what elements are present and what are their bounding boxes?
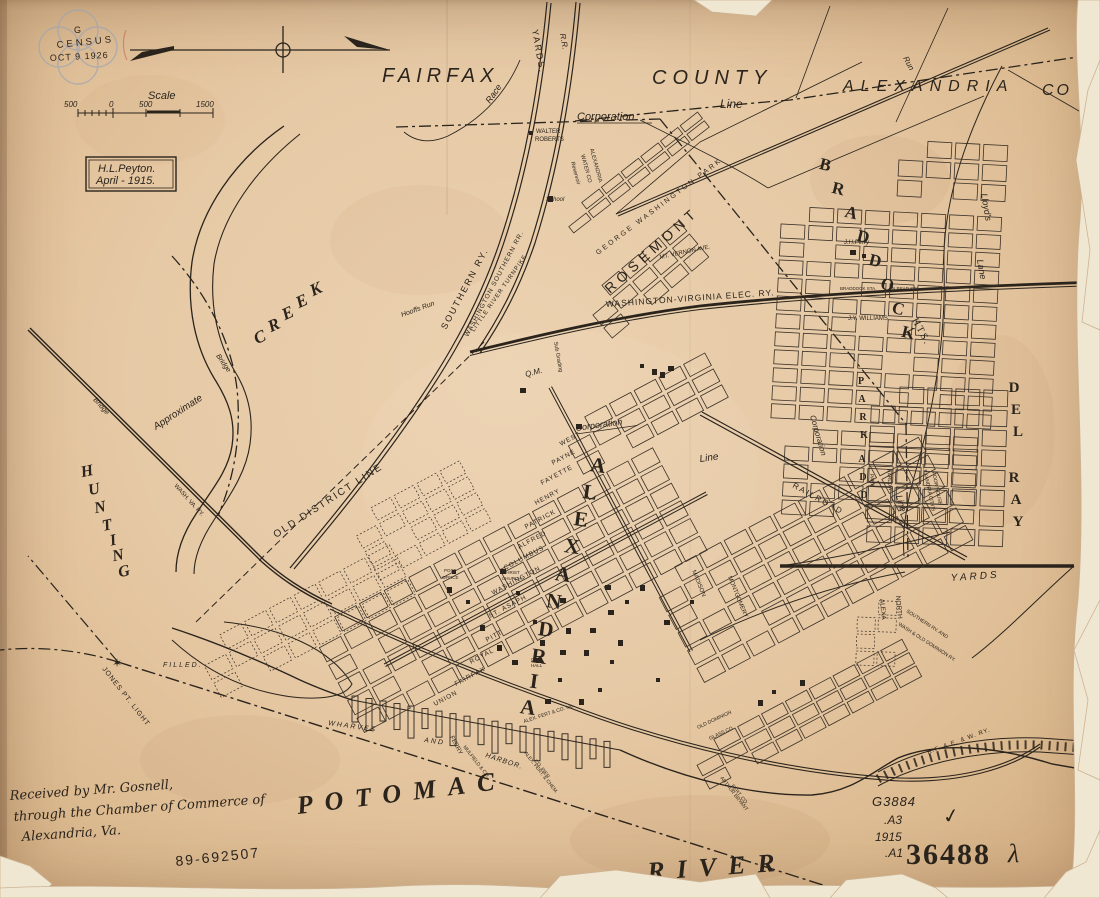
city-block [774, 350, 799, 365]
city-block [313, 619, 342, 644]
city-block [356, 526, 382, 549]
city-block [857, 617, 875, 632]
city-block [738, 715, 765, 737]
scale-500-left-label: 500 [64, 100, 78, 109]
city-block [319, 571, 348, 596]
city-block [777, 569, 806, 594]
building-mark [664, 620, 670, 625]
city-block [842, 512, 871, 537]
creek-label: CREEK [251, 277, 327, 348]
park-add-letter: A [858, 454, 866, 465]
hunting-letter: N [92, 498, 109, 518]
building-mark [579, 699, 584, 705]
hunting-label: HUNTING [78, 462, 132, 581]
bridge-2-label: Bridge [214, 353, 231, 374]
city-block [783, 521, 812, 546]
building-mark [800, 680, 805, 686]
building-mark [618, 640, 623, 646]
city-block [406, 681, 435, 706]
city-block [947, 251, 972, 266]
city-block [828, 389, 853, 404]
building-mark [610, 660, 614, 664]
city-block [588, 198, 610, 218]
city-block [799, 717, 826, 739]
building-mark [516, 591, 520, 595]
city-block [648, 152, 670, 172]
city-block [746, 631, 775, 656]
park-add-letter: D [859, 472, 866, 483]
building-mark [656, 678, 660, 682]
walter-roberts-1-label: WALTER [536, 129, 561, 135]
city-block [752, 582, 781, 607]
building-mark [566, 628, 571, 634]
wharf-pier [548, 731, 554, 751]
wharf-pier [604, 741, 610, 767]
city-block [847, 691, 874, 713]
school-label: School [546, 197, 565, 203]
city-block [394, 597, 423, 622]
bridge-1-label: Bridge [92, 397, 111, 417]
city-block [422, 650, 451, 675]
building-mark [533, 620, 537, 624]
fairfax-label: FAIRFAX [382, 65, 498, 87]
city-block [881, 639, 908, 661]
city-block [808, 225, 833, 240]
scan-edge-shadow [0, 0, 7, 898]
run-label: Run [901, 55, 916, 73]
building-mark [608, 610, 614, 615]
building-mark [660, 372, 665, 378]
city-block [712, 626, 741, 651]
wharf-pier [520, 726, 526, 752]
st-fairfax-label: FAIRFAX [454, 666, 487, 688]
city-block [244, 610, 273, 635]
city-block [831, 335, 856, 350]
city-block [288, 633, 317, 658]
map-line [796, 6, 830, 98]
city-block [778, 260, 803, 275]
building-mark [862, 254, 866, 258]
wharf-pier [464, 716, 470, 736]
city-block [779, 242, 804, 257]
city-block [353, 576, 382, 601]
city-block [976, 234, 1001, 249]
city-block [680, 112, 702, 132]
city-block [773, 368, 798, 383]
city-block [628, 167, 650, 187]
del-ray-letter: Y [1013, 514, 1024, 530]
city-block [943, 323, 968, 338]
city-block [781, 500, 806, 515]
building-mark [652, 369, 657, 375]
city-block [895, 666, 922, 688]
city-block [840, 678, 867, 700]
city-block [771, 404, 796, 419]
red-stamp-number-label: 36488 [906, 838, 991, 871]
alexandria-big-letter: I [528, 669, 539, 694]
wharf-pier [590, 739, 596, 759]
street-grid [195, 545, 416, 698]
city-block [816, 691, 843, 713]
mt-vernon-ave-label: MT. VERNON AVE. [659, 244, 711, 261]
del-ray-letter: L [1013, 424, 1023, 440]
building-mark [529, 131, 533, 135]
city-block [857, 652, 884, 674]
city-block [776, 314, 801, 329]
building-mark [466, 600, 470, 604]
creek-letter: E [278, 302, 297, 324]
city-block [688, 639, 717, 664]
city-block [418, 584, 447, 609]
corporation-top-label: Corporation [577, 111, 634, 123]
st-union-label: UNION [433, 689, 459, 707]
and-label: AND [423, 737, 446, 747]
city-block [948, 233, 973, 248]
city-block [871, 678, 898, 700]
map-line [172, 256, 238, 516]
wharf-pier [422, 709, 428, 729]
city-block [858, 354, 883, 369]
city-block [833, 665, 860, 687]
city-block [359, 592, 388, 617]
city-block [403, 615, 432, 640]
scanned-map-page: GCENSUSOCT 9 1926Scale50005001500H.L.Pey… [0, 0, 1100, 898]
braddock-big-letter: D [855, 226, 872, 247]
city-block [758, 534, 787, 559]
wharf-pier [478, 719, 484, 745]
city-block [365, 541, 391, 564]
city-block [796, 604, 825, 629]
wharf-pier [506, 724, 512, 744]
city-block [204, 654, 233, 679]
city-block [955, 143, 980, 160]
southern-wod-2-label: WASH & OLD DOMINION RY. [897, 622, 957, 664]
city-block [678, 622, 707, 647]
map-line [30, 328, 332, 604]
city-block [835, 245, 860, 260]
accession-number-label: 89-692507 [175, 844, 261, 869]
map-line [640, 120, 768, 188]
city-block [601, 174, 623, 194]
city-block [378, 628, 407, 653]
city-block [608, 182, 630, 202]
building-mark [480, 625, 485, 631]
hunting-letter: G [117, 562, 132, 581]
hooffs-run-label: Hooffs Run [400, 300, 435, 319]
title-date-label: April - 1915. [95, 175, 155, 187]
filled-label: FILLED. [163, 662, 203, 669]
post-office-1-label: POST [444, 568, 457, 573]
city-block [621, 158, 643, 178]
city-block [803, 333, 828, 348]
building-mark [668, 366, 674, 371]
city-block [582, 189, 604, 209]
yards-right-label: YARDS [950, 570, 1000, 584]
city-block [664, 264, 689, 288]
city-block [949, 215, 974, 230]
alexandria-big-letter: D [537, 616, 555, 642]
rr-top-label: R.R. [558, 33, 570, 50]
city-block [220, 624, 249, 649]
alexandria-1915-map: GCENSUSOCT 9 1926Scale50005001500H.L.Pey… [0, 0, 1100, 898]
city-block [661, 127, 683, 147]
city-block [806, 261, 831, 276]
city-block [669, 604, 698, 629]
city-block [641, 143, 663, 163]
city-block [884, 392, 909, 407]
park-add-letter: R [859, 412, 867, 423]
city-block [802, 351, 827, 366]
city-block [817, 525, 846, 550]
st-royal-label: ROYAL [469, 647, 496, 666]
scale-500-right-label: 500 [139, 100, 153, 109]
reservoir-3-label: Reservoir [569, 161, 581, 186]
red-stamp-mark-label: λ [1007, 839, 1019, 868]
scale-1500-label: 1500 [196, 100, 214, 109]
map-line [896, 8, 948, 122]
building-mark [497, 645, 502, 651]
city-block [978, 530, 1003, 547]
braddock-big-letter: D [867, 250, 884, 271]
creek-letter: R [264, 314, 283, 336]
christ-church-2-label: CHURCH [502, 576, 522, 581]
city-block [944, 305, 969, 320]
city-block [505, 628, 534, 653]
city-block [919, 539, 948, 564]
alexandria-big-letter: R [530, 643, 549, 669]
city-block [373, 557, 399, 580]
braddock-sta-label: BRADDOCK STA. [840, 286, 876, 291]
city-block [946, 269, 971, 284]
city-block [870, 426, 895, 443]
city-block [329, 654, 358, 679]
north-arrow-icon [130, 26, 390, 73]
building-mark [520, 388, 526, 393]
call-number-3-label: 1915 [875, 830, 902, 844]
city-block [823, 704, 850, 726]
lloyds-label: Lloyd's [979, 193, 994, 223]
county-label: COUNTY [652, 67, 772, 89]
alexandria-co-2-label: CO [1042, 82, 1072, 99]
city-block [279, 615, 308, 640]
city-block [802, 556, 831, 581]
del-ray-letter: D [1009, 380, 1020, 396]
city-block [829, 371, 854, 386]
city-block [920, 231, 945, 246]
building-mark [545, 699, 551, 704]
city-block [885, 374, 910, 389]
building-mark [758, 700, 763, 706]
city-block [800, 387, 825, 402]
city-block [856, 651, 874, 666]
building-mark [584, 650, 589, 656]
corporation-right-label: Corporation [808, 414, 828, 457]
city-block [776, 729, 803, 751]
building-mark [590, 628, 596, 633]
red-pencil-mark [123, 30, 127, 60]
park-add-letter: K [860, 430, 868, 441]
city-block [856, 634, 874, 649]
city-block [792, 703, 819, 725]
wharf-pier [436, 711, 442, 737]
title-author-label: H.L.Peyton. [98, 163, 155, 175]
city-block [343, 558, 372, 583]
jy-williams-label: J.Y. WILLIAMS [848, 316, 888, 322]
city-block [809, 677, 836, 699]
city-block [377, 562, 406, 587]
city-block [384, 579, 413, 604]
city-block [869, 446, 894, 463]
city-block [785, 690, 812, 712]
city-block [892, 230, 917, 245]
map-line [0, 649, 118, 663]
received-note-3-label: Alexandria, Va. [20, 823, 121, 845]
park-add-letter: A [858, 394, 866, 405]
creek-letter: C [251, 326, 270, 348]
old-dominion-glass-2-label: GLASS CO. [708, 725, 735, 742]
map-line [352, 700, 620, 750]
creek-letter: E [292, 290, 311, 312]
building-mark [625, 600, 629, 604]
city-block [774, 503, 803, 528]
map-line [194, 134, 300, 574]
city-block [722, 644, 751, 669]
city-block [387, 580, 416, 605]
street-grid [856, 600, 897, 666]
city-block [919, 249, 944, 264]
city-block [697, 657, 726, 682]
hunting-letter: H [78, 462, 95, 482]
stamp-date-label: OCT 9 1926 [50, 50, 109, 63]
wharf-pier [576, 736, 582, 768]
pencil-check-label: ✓ [941, 804, 961, 829]
building-mark [640, 364, 644, 368]
city-block [827, 407, 852, 422]
city-block [860, 300, 885, 315]
building-mark [558, 678, 562, 682]
building-mark [447, 587, 452, 593]
city-block [821, 591, 850, 616]
city-block [780, 224, 805, 239]
city-block [263, 646, 292, 671]
city-block [870, 565, 899, 590]
city-block [949, 509, 974, 524]
jones-pt-star-label: ✶ [112, 656, 122, 670]
city-block [269, 597, 298, 622]
city-block [805, 279, 830, 294]
county-line-label: Line [720, 97, 743, 111]
wharf-pier [562, 734, 568, 760]
scale-0-label: 0 [109, 100, 114, 109]
city-block [845, 578, 874, 603]
city-block [834, 263, 859, 278]
building-mark [598, 688, 602, 692]
city-block [801, 369, 826, 384]
city-block [745, 729, 772, 751]
walter-roberts-2-label: ROBERTS [535, 137, 564, 143]
north-vertical-label: NORTH [894, 596, 903, 620]
city-block [864, 665, 891, 687]
city-block [982, 164, 1007, 181]
city-block [918, 267, 943, 282]
city-block [885, 534, 914, 559]
city-block [891, 248, 916, 263]
city-block [832, 299, 857, 314]
city-block [428, 601, 457, 626]
city-block [372, 676, 401, 701]
city-block [319, 636, 348, 661]
city-block [734, 547, 763, 572]
map-line [620, 748, 1098, 795]
call-number-2-label: .A3 [884, 813, 902, 827]
building-mark [772, 690, 776, 694]
city-block [972, 306, 997, 321]
city-block [811, 574, 840, 599]
city-block [769, 716, 796, 738]
christ-church-1-label: CHRIST [503, 570, 520, 575]
city-block [569, 213, 591, 233]
city-block [942, 341, 967, 356]
del-ray-letter: R [1009, 470, 1020, 486]
call-number-4-label: .A1 [885, 846, 903, 860]
city-block [914, 357, 939, 372]
city-block [659, 586, 688, 611]
jones-pt-light-label: JONES PT. LIGHT [100, 666, 150, 728]
city-block [859, 336, 884, 351]
city-block [869, 432, 894, 447]
city-block [953, 183, 978, 200]
stamp-g-label: G [74, 25, 81, 35]
building-mark [640, 585, 645, 591]
wharf-pier [534, 729, 540, 761]
city-block [775, 332, 800, 347]
del-ray-letter: E [1011, 402, 1021, 418]
map-line [172, 622, 352, 698]
city-block [777, 278, 802, 293]
rfew-ry-label: R.F. & E. & W. RY. [927, 727, 992, 755]
city-block [771, 618, 800, 643]
lane-label: Lane [975, 259, 988, 280]
map-line [28, 556, 118, 662]
approximate-label: Approximate [151, 392, 205, 433]
n-brad-sta-label: N.BRAD.STA. [892, 286, 920, 291]
map-line [330, 609, 1040, 781]
city-block [762, 703, 789, 725]
building-mark [850, 250, 856, 255]
building-mark [512, 660, 518, 665]
city-block [888, 653, 915, 675]
post-office-2-label: OFFICE [442, 575, 459, 580]
building-mark [560, 650, 566, 655]
line-right-label: Line [894, 494, 908, 513]
city-block [697, 754, 724, 776]
city-block [369, 610, 398, 635]
city-block [921, 213, 946, 228]
city-block [983, 144, 1008, 161]
park-add-letter: P [858, 376, 864, 387]
city-block [786, 587, 815, 612]
park-vertical-label: PARK [868, 474, 875, 488]
city-block [743, 565, 772, 590]
call-number-1-label: G3884 [872, 794, 916, 809]
park-add-letter: D [860, 490, 867, 501]
park-add-label: PARKADD [858, 376, 868, 501]
hunting-letter: U [87, 480, 103, 499]
creek-letter: K [306, 277, 327, 300]
city-block [749, 516, 778, 541]
building-mark [605, 585, 611, 590]
alexa-vertical-label: ALEXA [878, 599, 887, 621]
